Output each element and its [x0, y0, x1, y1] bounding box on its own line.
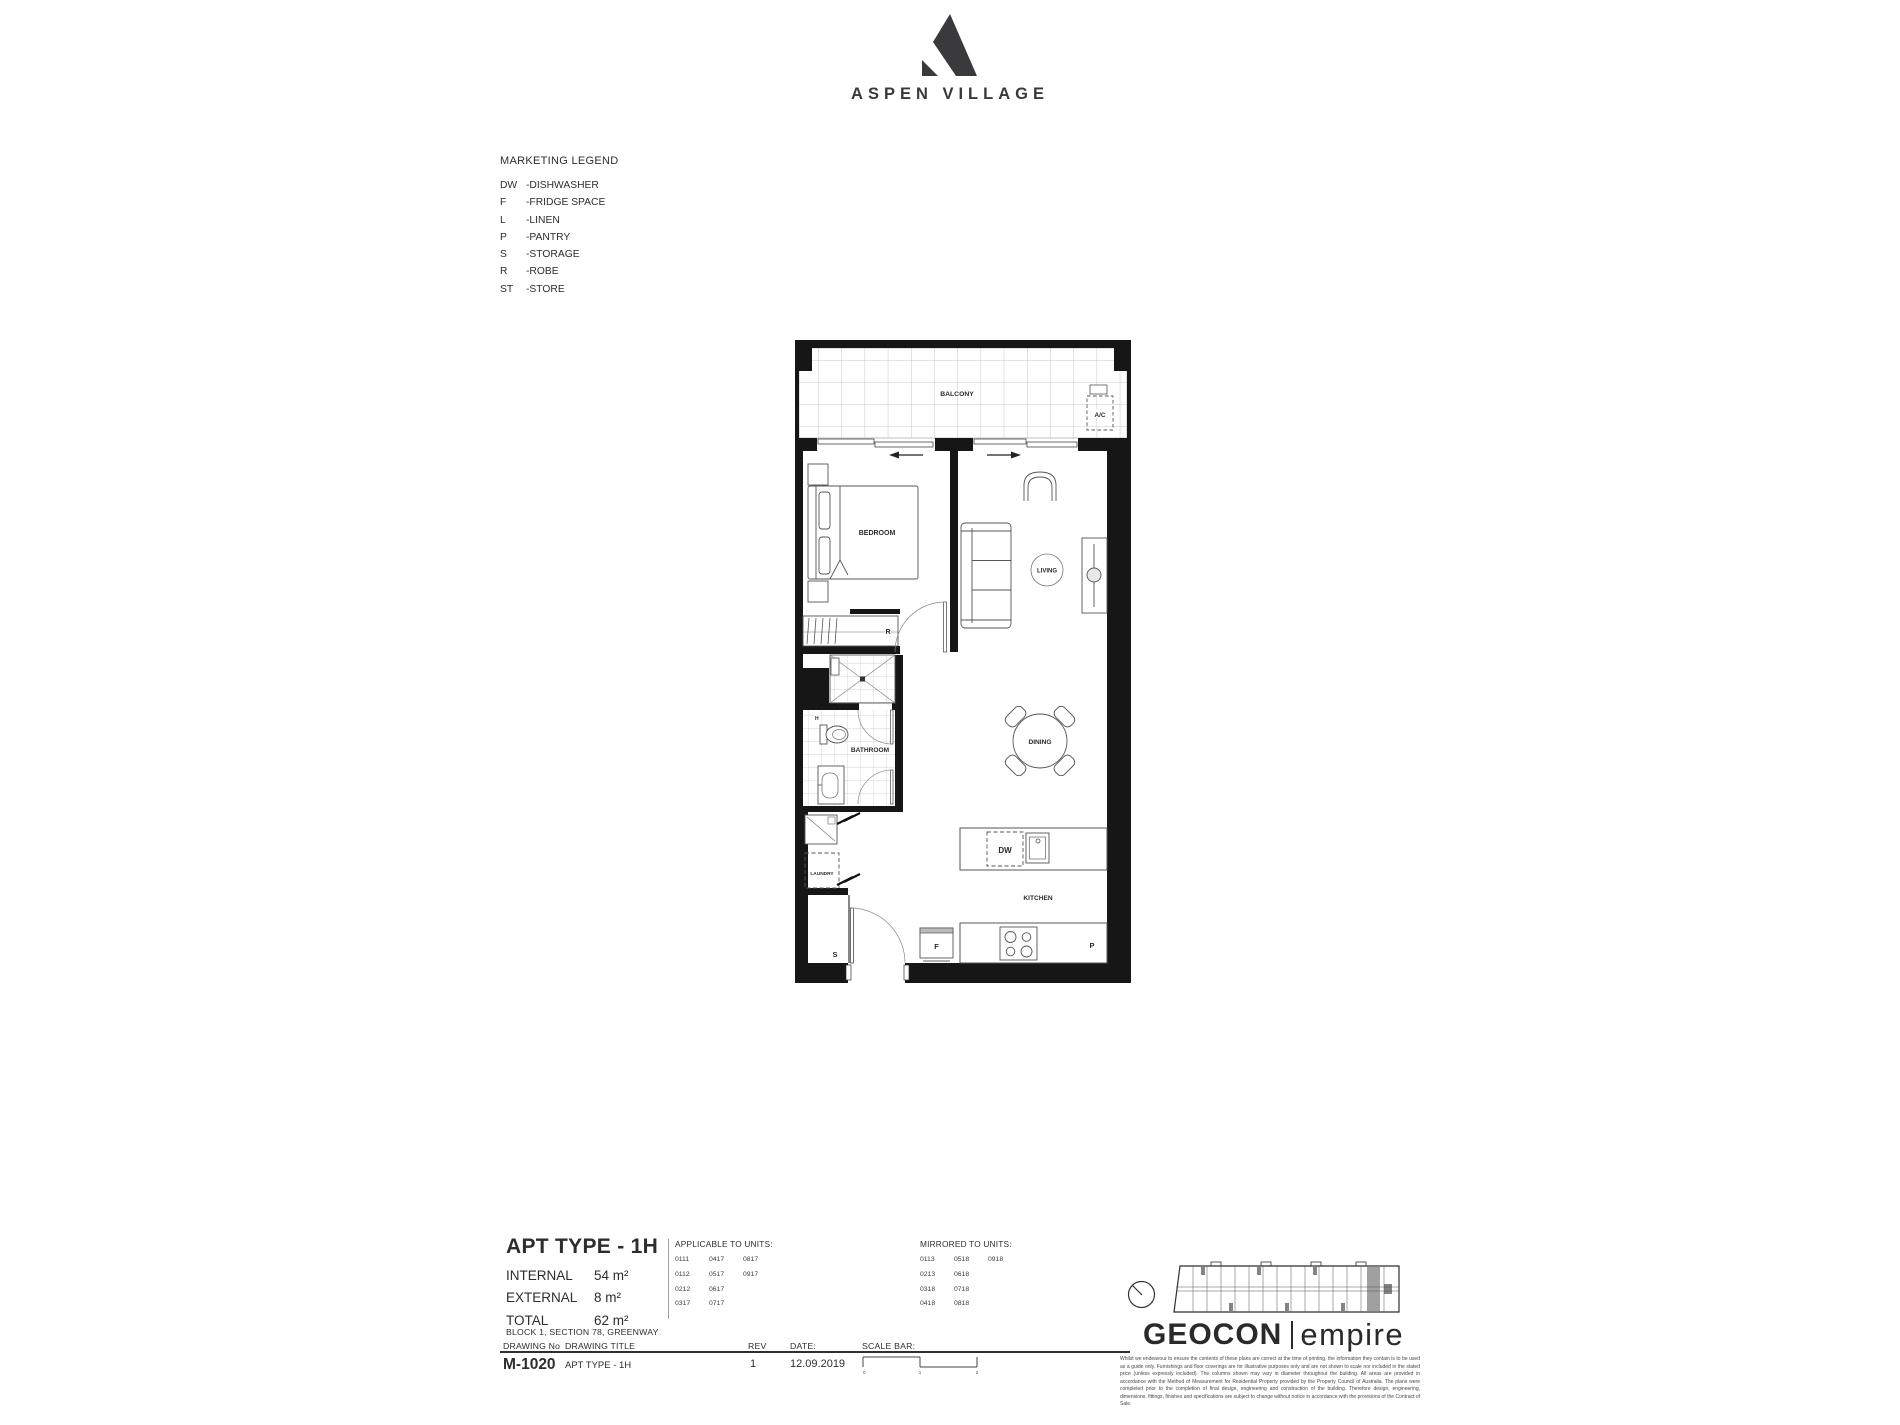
pair-label: P	[500, 229, 526, 246]
marketing-legend: MARKETING LEGEND DW-DISHWASHERF-FRIDGE S…	[500, 155, 710, 298]
pair-value: -LINEN	[526, 212, 710, 229]
pair-row: P-PANTRY	[500, 229, 710, 246]
sink	[1026, 833, 1049, 863]
applicable-units-col: 08170917	[743, 1253, 777, 1312]
legend-items: DW-DISHWASHERF-FRIDGE SPACEL-LINENP-PANT…	[500, 177, 710, 298]
living: LIVING	[961, 472, 1107, 628]
titleblock-rule	[500, 1351, 1130, 1353]
balcony-label: BALCONY	[940, 391, 974, 398]
armchair	[1024, 472, 1056, 501]
pair-row: INTERNAL54 m²	[506, 1265, 654, 1287]
entry-door	[846, 908, 909, 980]
empire-wordmark: empire	[1300, 1317, 1404, 1353]
applicable-units-col: 0111011202120317	[675, 1253, 709, 1312]
unit-number: 0518	[954, 1253, 988, 1268]
location-line: BLOCK 1, SECTION 78, GREENWAY	[506, 1327, 659, 1337]
drawing-no-header: DRAWING No	[503, 1341, 560, 1351]
toilet	[820, 725, 848, 744]
floor-plan: BALCONY A/C	[795, 338, 1131, 988]
unit-number: 0417	[709, 1253, 743, 1268]
mirrored-units-col: 0518061807180818	[954, 1253, 988, 1312]
dining: DINING	[1003, 704, 1077, 778]
rev-header: REV	[748, 1341, 766, 1351]
pair-row: R-ROBE	[500, 263, 710, 280]
window-slide-arrow-left	[889, 452, 923, 459]
unit-number: 0212	[675, 1283, 709, 1298]
bedside-table	[808, 581, 828, 602]
fridge-label: F	[934, 942, 939, 951]
north-indicator	[1127, 1280, 1156, 1309]
pair-label: S	[500, 246, 526, 263]
kitchen-label: KITCHEN	[1023, 895, 1053, 902]
pair-row: DW-DISHWASHER	[500, 177, 710, 194]
wall-break-mark	[837, 874, 860, 885]
floorplan-page: ASPEN VILLAGE MARKETING LEGEND DW-DISHWA…	[0, 0, 1900, 1425]
pair-row: S-STORAGE	[500, 246, 710, 263]
geocon-empire-logo: GEOCON empire	[1143, 1317, 1404, 1353]
pair-value: 8 m²	[594, 1287, 654, 1309]
drawing-title-value: APT TYPE - 1H	[565, 1360, 631, 1371]
ac-label: A/C	[1094, 412, 1105, 419]
drawing-no-value: M-1020	[503, 1356, 556, 1374]
pair-value: -ROBE	[526, 263, 710, 280]
tv-unit	[1082, 538, 1107, 613]
key-plan	[1171, 1260, 1404, 1318]
vanity	[818, 766, 844, 804]
balcony: BALCONY A/C	[799, 348, 1127, 438]
scale-bar-header: SCALE BAR:	[862, 1341, 915, 1351]
pair-value: -STORE	[526, 281, 710, 298]
applicable-units-col: 0417051706170717	[709, 1253, 743, 1312]
aspen-village-logo: ASPEN VILLAGE	[845, 14, 1055, 104]
unit-number: 0617	[709, 1283, 743, 1298]
storage: S	[832, 895, 850, 963]
shower	[830, 655, 895, 703]
pair-label: INTERNAL	[506, 1265, 594, 1287]
pair-value: 54 m²	[594, 1265, 654, 1287]
scale-tick-2: 2	[976, 1370, 979, 1375]
unit-number: 0718	[954, 1283, 988, 1298]
pair-label: R	[500, 263, 526, 280]
laundry: LAUNDRY	[805, 813, 860, 888]
applicable-units-title: APPLICABLE TO UNITS:	[675, 1239, 915, 1249]
wall-break-mark	[837, 813, 860, 824]
rev-value: 1	[750, 1358, 756, 1370]
unit-number: 0917	[743, 1268, 777, 1283]
key-plan-highlighted-unit	[1367, 1267, 1380, 1311]
cooktop	[1000, 927, 1037, 960]
unit-number: 0112	[675, 1268, 709, 1283]
unit-number: 0517	[709, 1268, 743, 1283]
pair-label: EXTERNAL	[506, 1287, 594, 1309]
unit-number: 0918	[988, 1253, 1022, 1268]
sofa	[961, 523, 1011, 628]
unit-number: 0113	[920, 1253, 954, 1268]
bathroom-h-label: H	[815, 716, 819, 722]
bedroom-label: BEDROOM	[859, 530, 896, 537]
apt-type-heading: APT TYPE - 1H	[506, 1235, 658, 1259]
logo-divider	[1291, 1321, 1293, 1349]
applicable-units-block: APPLICABLE TO UNITS: 0111011202120317 04…	[668, 1239, 915, 1319]
date-header: DATE:	[790, 1341, 816, 1351]
brand-name: ASPEN VILLAGE	[845, 85, 1055, 104]
mirrored-units-col: 0918	[988, 1253, 1022, 1312]
bedroom: BEDROOM	[808, 464, 918, 602]
pair-value: -STORAGE	[526, 246, 710, 263]
pair-label: L	[500, 212, 526, 229]
unit-number: 0717	[709, 1297, 743, 1312]
date-value: 12.09.2019	[790, 1358, 845, 1370]
fridge-space: F	[920, 928, 953, 961]
legend-title: MARKETING LEGEND	[500, 155, 710, 167]
bathroom-label: BATHROOM	[851, 747, 890, 754]
mirrored-units-col: 0113021303180418	[920, 1253, 954, 1312]
pair-row: ST-STORE	[500, 281, 710, 298]
robe: R	[803, 616, 898, 646]
aspen-village-logo-mark	[920, 14, 980, 78]
unit-number: 0111	[675, 1253, 709, 1268]
robe-label: R	[885, 629, 890, 636]
unit-number: 0618	[954, 1268, 988, 1283]
pair-label: F	[500, 194, 526, 211]
unit-number: 0818	[954, 1297, 988, 1312]
pair-row: EXTERNAL8 m²	[506, 1287, 654, 1309]
scale-bar: 0 1 2	[862, 1356, 982, 1376]
laundry-label: LAUNDRY	[810, 871, 834, 877]
geocon-wordmark: GEOCON	[1143, 1318, 1282, 1352]
bathroom: H BATHROOM	[803, 710, 895, 806]
unit-number: 0418	[920, 1297, 954, 1312]
pair-value: -FRIDGE SPACE	[526, 194, 710, 211]
disclaimer-text: Whilst we endeavour to ensure the conten…	[1120, 1356, 1420, 1409]
window-slide-arrow-right	[987, 452, 1021, 459]
scale-tick-0: 0	[863, 1370, 866, 1375]
drawing-title-header: DRAWING TITLE	[565, 1341, 635, 1351]
bedside-table	[808, 464, 828, 485]
unit-number: 0213	[920, 1268, 954, 1283]
bedroom-door	[895, 602, 947, 652]
kitchen: DW KITCHEN F P	[920, 828, 1107, 963]
unit-number: 0318	[920, 1283, 954, 1298]
pair-row: L-LINEN	[500, 212, 710, 229]
unit-number: 0817	[743, 1253, 777, 1268]
living-label-circle: LIVING	[1031, 554, 1063, 586]
pantry-label: P	[1089, 941, 1094, 950]
dining-label: DINING	[1028, 739, 1051, 746]
pair-label: DW	[500, 177, 526, 194]
unit-number: 0317	[675, 1297, 709, 1312]
mirrored-units-block: MIRRORED TO UNITS: 0113021303180418 0518…	[920, 1239, 1160, 1312]
pair-value: -PANTRY	[526, 229, 710, 246]
area-summary: INTERNAL54 m²EXTERNAL8 m²TOTAL62 m²	[506, 1265, 654, 1332]
dishwasher-label: DW	[998, 846, 1012, 855]
pair-label: ST	[500, 281, 526, 298]
pair-value: -DISHWASHER	[526, 177, 710, 194]
storage-label: S	[832, 950, 837, 959]
scale-tick-1: 1	[919, 1370, 922, 1375]
pair-row: F-FRIDGE SPACE	[500, 194, 710, 211]
mirrored-units-title: MIRRORED TO UNITS:	[920, 1239, 1160, 1249]
living-label: LIVING	[1037, 569, 1057, 575]
